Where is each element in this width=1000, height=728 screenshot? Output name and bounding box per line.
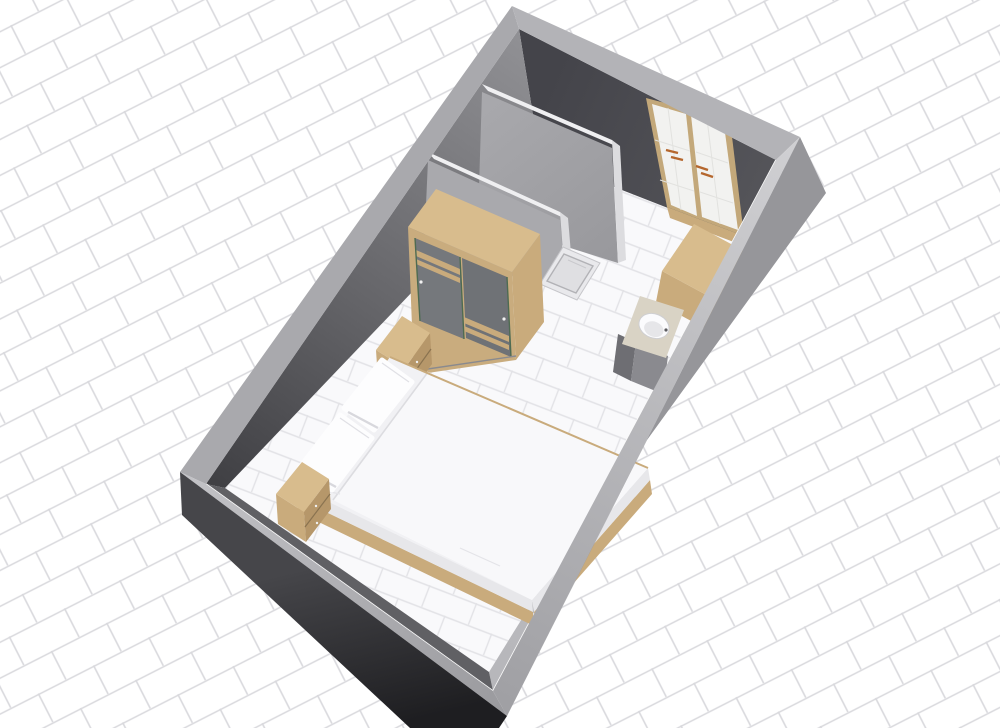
wardrobe-handle-left-icon (419, 280, 422, 283)
nightstand-left-knob1 (315, 505, 317, 507)
faucet-icon (664, 328, 667, 331)
wardrobe-handle-right-icon (502, 317, 505, 320)
nightstand-right-knob1 (416, 361, 418, 363)
floor-plan-3d-view (0, 0, 1000, 728)
nightstand-left-knob2 (316, 522, 318, 524)
